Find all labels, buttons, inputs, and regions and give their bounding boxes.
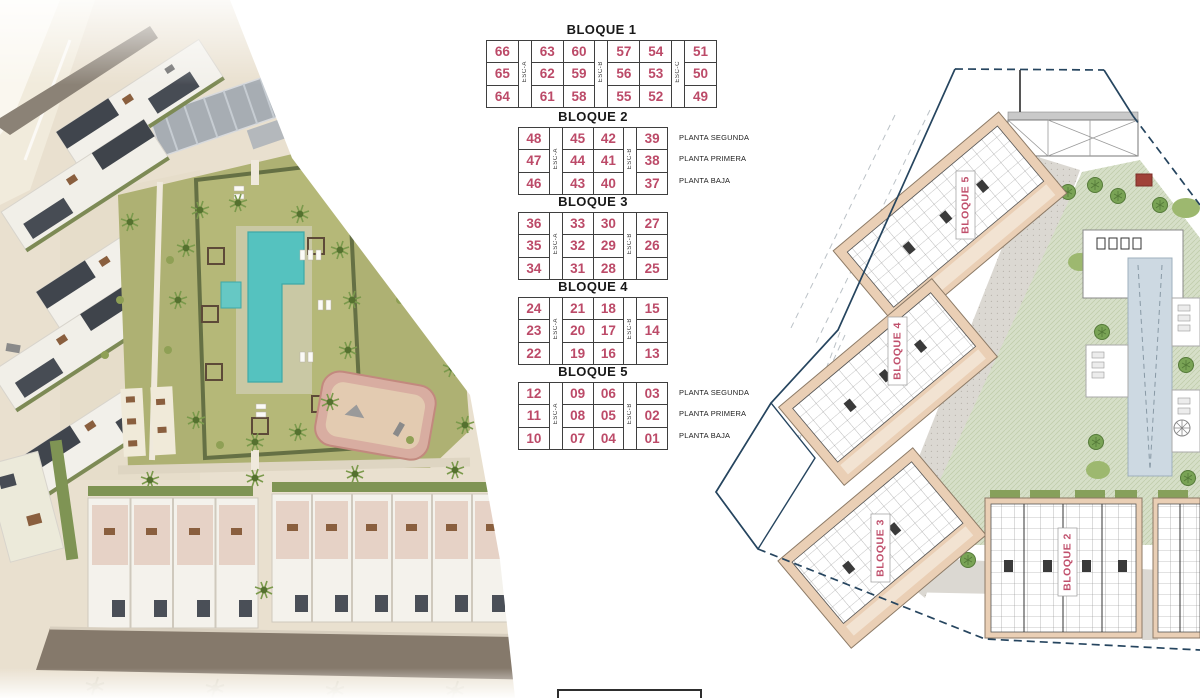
unit-number-cell: 35 bbox=[519, 235, 550, 257]
unit-number-cell: 17 bbox=[593, 320, 624, 342]
bloque-5-table: BLOQUE 5 12ESC-A0906ESC-B031108050210070… bbox=[518, 364, 668, 450]
stairwell-cell: ESC-A bbox=[549, 128, 562, 195]
unit-number-cell: 62 bbox=[531, 63, 563, 85]
legend-box-partial bbox=[557, 689, 702, 698]
unit-number-cell: 14 bbox=[637, 320, 668, 342]
townhouse-row-a bbox=[88, 486, 258, 628]
unit-number-cell: 30 bbox=[593, 213, 624, 235]
bloque-3-table: BLOQUE 3 36ESC-A3330ESC-B273532292634312… bbox=[518, 194, 668, 280]
unit-number-cell: 34 bbox=[519, 257, 550, 279]
unit-number-cell: 29 bbox=[593, 235, 624, 257]
stairwell-cell: ESC-B bbox=[624, 298, 637, 365]
unit-number-cell: 21 bbox=[562, 298, 593, 320]
plano-sheet: BLOQUE 5 BLOQUE 4 BLOQUE 3 BLOQUE 2 BLOQ… bbox=[0, 0, 1200, 698]
block-2-label: BLOQUE 2 bbox=[1062, 533, 1074, 591]
unit-number-cell: 66 bbox=[487, 41, 519, 63]
unit-grid: 12ESC-A0906ESC-B031108050210070401 bbox=[518, 382, 668, 450]
unit-number-cell: 11 bbox=[519, 405, 550, 427]
stairwell-cell: ESC-B bbox=[624, 128, 637, 195]
unit-number-cell: 61 bbox=[531, 85, 563, 107]
stairwell-cell: ESC-A bbox=[549, 213, 562, 280]
unit-number-cell: 07 bbox=[562, 427, 593, 449]
unit-number-cell: 15 bbox=[637, 298, 668, 320]
unit-number-cell: 04 bbox=[593, 427, 624, 449]
unit-number-cell: 48 bbox=[519, 128, 550, 150]
access-ramp bbox=[1008, 70, 1138, 156]
bloque-5-title: BLOQUE 5 bbox=[518, 364, 668, 379]
unit-number-cell: 26 bbox=[637, 235, 668, 257]
aerial-render bbox=[0, 0, 548, 698]
unit-number-cell: 02 bbox=[637, 405, 668, 427]
bloque-4-title: BLOQUE 4 bbox=[518, 279, 668, 294]
block-3-label: BLOQUE 3 bbox=[875, 519, 887, 577]
unit-number-cell: 42 bbox=[593, 128, 624, 150]
unit-number-cell: 40 bbox=[593, 172, 624, 194]
unit-number-cell: 64 bbox=[487, 85, 519, 107]
stairwell-cell: ESC-A bbox=[518, 41, 531, 108]
unit-number-cell: 16 bbox=[593, 342, 624, 364]
stairwell-cell: ESC-A bbox=[549, 298, 562, 365]
bloque-5-planta-labels: PLANTA SEGUNDA PLANTA PRIMERA PLANTA BAJ… bbox=[679, 382, 749, 446]
unit-number-cell: 57 bbox=[608, 41, 640, 63]
townhouse-row-b bbox=[272, 482, 512, 622]
unit-number-cell: 47 bbox=[519, 150, 550, 172]
unit-number-cell: 05 bbox=[593, 405, 624, 427]
hedge-strips bbox=[990, 490, 1188, 498]
stairwell-cell: ESC-B bbox=[624, 383, 637, 450]
plan-pool bbox=[1128, 258, 1172, 476]
utility-structure bbox=[1136, 174, 1152, 186]
unit-number-cell: 24 bbox=[519, 298, 550, 320]
unit-grid: 36ESC-A3330ESC-B273532292634312825 bbox=[518, 212, 668, 280]
unit-grid: 48ESC-A4542ESC-B394744413846434037 bbox=[518, 127, 668, 195]
unit-number-cell: 60 bbox=[563, 41, 595, 63]
bloque-2-table: BLOQUE 2 48ESC-A4542ESC-B394744413846434… bbox=[518, 109, 668, 195]
bloque-1-table: BLOQUE 1 66ESC-A6360ESC-B5754ESC-C516562… bbox=[486, 22, 717, 108]
unit-grid: 24ESC-A2118ESC-B152320171422191613 bbox=[518, 297, 668, 365]
unit-number-cell: 18 bbox=[593, 298, 624, 320]
planta-label: PLANTA PRIMERA bbox=[679, 155, 749, 163]
unit-number-cell: 52 bbox=[640, 85, 672, 107]
unit-number-cell: 03 bbox=[637, 383, 668, 405]
stairwell-cell: ESC-A bbox=[549, 383, 562, 450]
unit-number-cell: 08 bbox=[562, 405, 593, 427]
unit-number-cell: 45 bbox=[562, 128, 593, 150]
unit-number-cell: 65 bbox=[487, 63, 519, 85]
unit-number-cell: 46 bbox=[519, 172, 550, 194]
unit-grid: 66ESC-A6360ESC-B5754ESC-C516562595653506… bbox=[486, 40, 717, 108]
unit-number-cell: 10 bbox=[519, 427, 550, 449]
kids-pool bbox=[221, 282, 241, 308]
unit-number-cell: 49 bbox=[685, 85, 717, 107]
unit-number-cell: 37 bbox=[637, 172, 668, 194]
stairwell-cell: ESC-B bbox=[624, 213, 637, 280]
unit-number-cell: 09 bbox=[562, 383, 593, 405]
unit-number-cell: 39 bbox=[637, 128, 668, 150]
unit-number-cell: 33 bbox=[562, 213, 593, 235]
bloque-2-planta-labels: PLANTA SEGUNDA PLANTA PRIMERA PLANTA BAJ… bbox=[679, 127, 749, 191]
unit-number-cell: 28 bbox=[593, 257, 624, 279]
unit-number-cell: 32 bbox=[562, 235, 593, 257]
unit-number-cell: 55 bbox=[608, 85, 640, 107]
unit-number-cell: 58 bbox=[563, 85, 595, 107]
planta-label: PLANTA SEGUNDA bbox=[679, 134, 749, 142]
planta-label: PLANTA BAJA bbox=[679, 177, 749, 185]
unit-number-cell: 19 bbox=[562, 342, 593, 364]
bloque-3-title: BLOQUE 3 bbox=[518, 194, 668, 209]
unit-number-cell: 59 bbox=[563, 63, 595, 85]
unit-number-cell: 50 bbox=[685, 63, 717, 85]
unit-number-cell: 31 bbox=[562, 257, 593, 279]
bloque-2-title: BLOQUE 2 bbox=[518, 109, 668, 124]
planta-label: PLANTA BAJA bbox=[679, 432, 749, 440]
unit-number-cell: 27 bbox=[637, 213, 668, 235]
planta-label: PLANTA SEGUNDA bbox=[679, 389, 749, 397]
stairwell-cell: ESC-B bbox=[595, 41, 608, 108]
unit-number-cell: 01 bbox=[637, 427, 668, 449]
unit-number-cell: 53 bbox=[640, 63, 672, 85]
unit-number-cell: 38 bbox=[637, 150, 668, 172]
unit-number-cell: 63 bbox=[531, 41, 563, 63]
unit-number-cell: 41 bbox=[593, 150, 624, 172]
unit-number-cell: 51 bbox=[685, 41, 717, 63]
planta-label: PLANTA PRIMERA bbox=[679, 410, 749, 418]
bloque-4-table: BLOQUE 4 24ESC-A2118ESC-B152320171422191… bbox=[518, 279, 668, 365]
unit-number-cell: 22 bbox=[519, 342, 550, 364]
unit-number-cell: 56 bbox=[608, 63, 640, 85]
block-5-label: BLOQUE 5 bbox=[960, 176, 972, 234]
unit-number-cell: 20 bbox=[562, 320, 593, 342]
unit-number-cell: 23 bbox=[519, 320, 550, 342]
unit-number-cell: 25 bbox=[637, 257, 668, 279]
unit-number-cell: 54 bbox=[640, 41, 672, 63]
block-4-label: BLOQUE 4 bbox=[892, 322, 904, 380]
unit-number-cell: 43 bbox=[562, 172, 593, 194]
unit-number-cell: 13 bbox=[637, 342, 668, 364]
partial-block-building bbox=[1153, 498, 1200, 638]
unit-number-cell: 44 bbox=[562, 150, 593, 172]
site-plan: BLOQUE 5 BLOQUE 4 BLOQUE 3 BLOQUE 2 bbox=[700, 55, 1200, 698]
bloque-1-title: BLOQUE 1 bbox=[486, 22, 717, 37]
stairwell-cell: ESC-C bbox=[672, 41, 685, 108]
unit-number-cell: 12 bbox=[519, 383, 550, 405]
unit-number-cell: 06 bbox=[593, 383, 624, 405]
unit-number-cell: 36 bbox=[519, 213, 550, 235]
